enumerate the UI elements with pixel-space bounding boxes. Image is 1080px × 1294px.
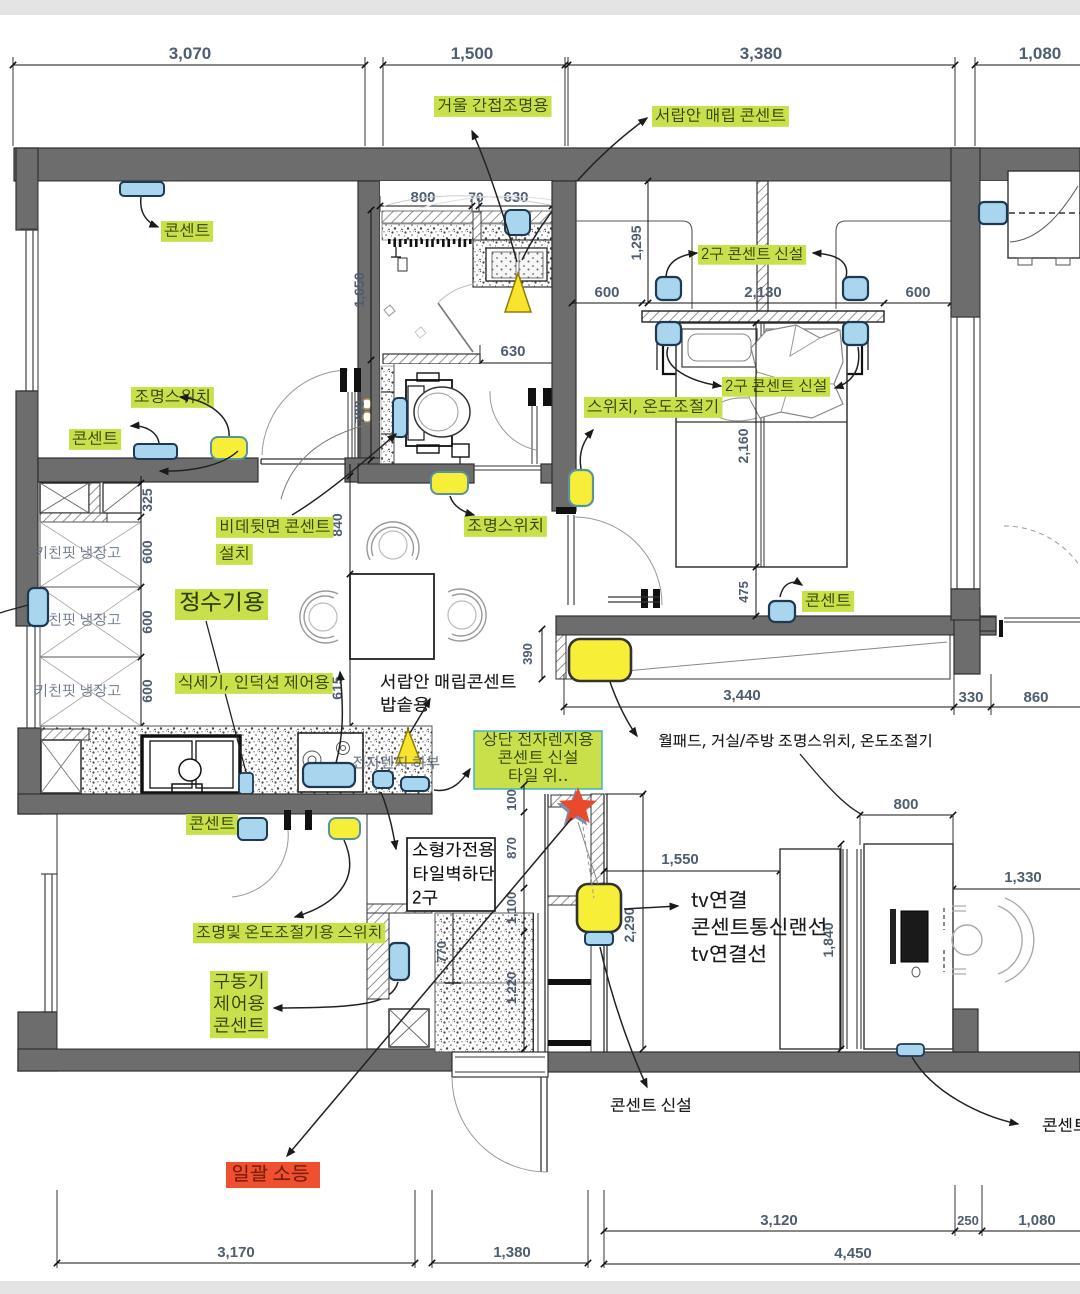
svg-text:1,380: 1,380 [493, 1244, 531, 1261]
svg-text:870: 870 [504, 837, 519, 859]
svg-text:1,840: 1,840 [820, 922, 836, 957]
svg-text:3,120: 3,120 [760, 1212, 798, 1229]
svg-text:1,650: 1,650 [351, 272, 367, 307]
svg-text:1,080: 1,080 [1019, 44, 1062, 63]
svg-text:325: 325 [139, 488, 155, 512]
svg-text:475: 475 [736, 581, 751, 603]
svg-text:2,160: 2,160 [735, 428, 751, 463]
svg-text:1,330: 1,330 [1004, 869, 1042, 886]
svg-text:250: 250 [957, 1213, 979, 1228]
svg-text:600: 600 [139, 679, 155, 703]
svg-text:1,080: 1,080 [1018, 1212, 1056, 1229]
svg-text:600: 600 [139, 610, 155, 634]
svg-text:770: 770 [434, 941, 449, 963]
svg-text:2,130: 2,130 [744, 284, 782, 301]
svg-text:100: 100 [504, 789, 519, 811]
svg-text:860: 860 [1023, 689, 1048, 706]
svg-text:1,220: 1,220 [504, 972, 519, 1005]
svg-text:1,550: 1,550 [661, 851, 699, 868]
svg-text:3,440: 3,440 [723, 687, 761, 704]
svg-text:1,500: 1,500 [451, 44, 494, 63]
svg-text:3,070: 3,070 [169, 44, 212, 63]
svg-text:1,295: 1,295 [628, 225, 644, 260]
svg-text:3,380: 3,380 [740, 44, 783, 63]
svg-text:330: 330 [958, 689, 983, 706]
svg-text:630: 630 [503, 189, 528, 206]
svg-text:600: 600 [139, 540, 155, 564]
svg-text:390: 390 [520, 643, 535, 665]
svg-text:3,170: 3,170 [217, 1244, 255, 1261]
svg-text:700: 700 [351, 400, 367, 424]
svg-text:2,290: 2,290 [621, 907, 637, 942]
svg-text:600: 600 [594, 284, 619, 301]
svg-text:4,450: 4,450 [834, 1245, 872, 1262]
svg-text:800: 800 [893, 796, 918, 813]
svg-text:600: 600 [905, 284, 930, 301]
svg-text:630: 630 [500, 343, 525, 360]
